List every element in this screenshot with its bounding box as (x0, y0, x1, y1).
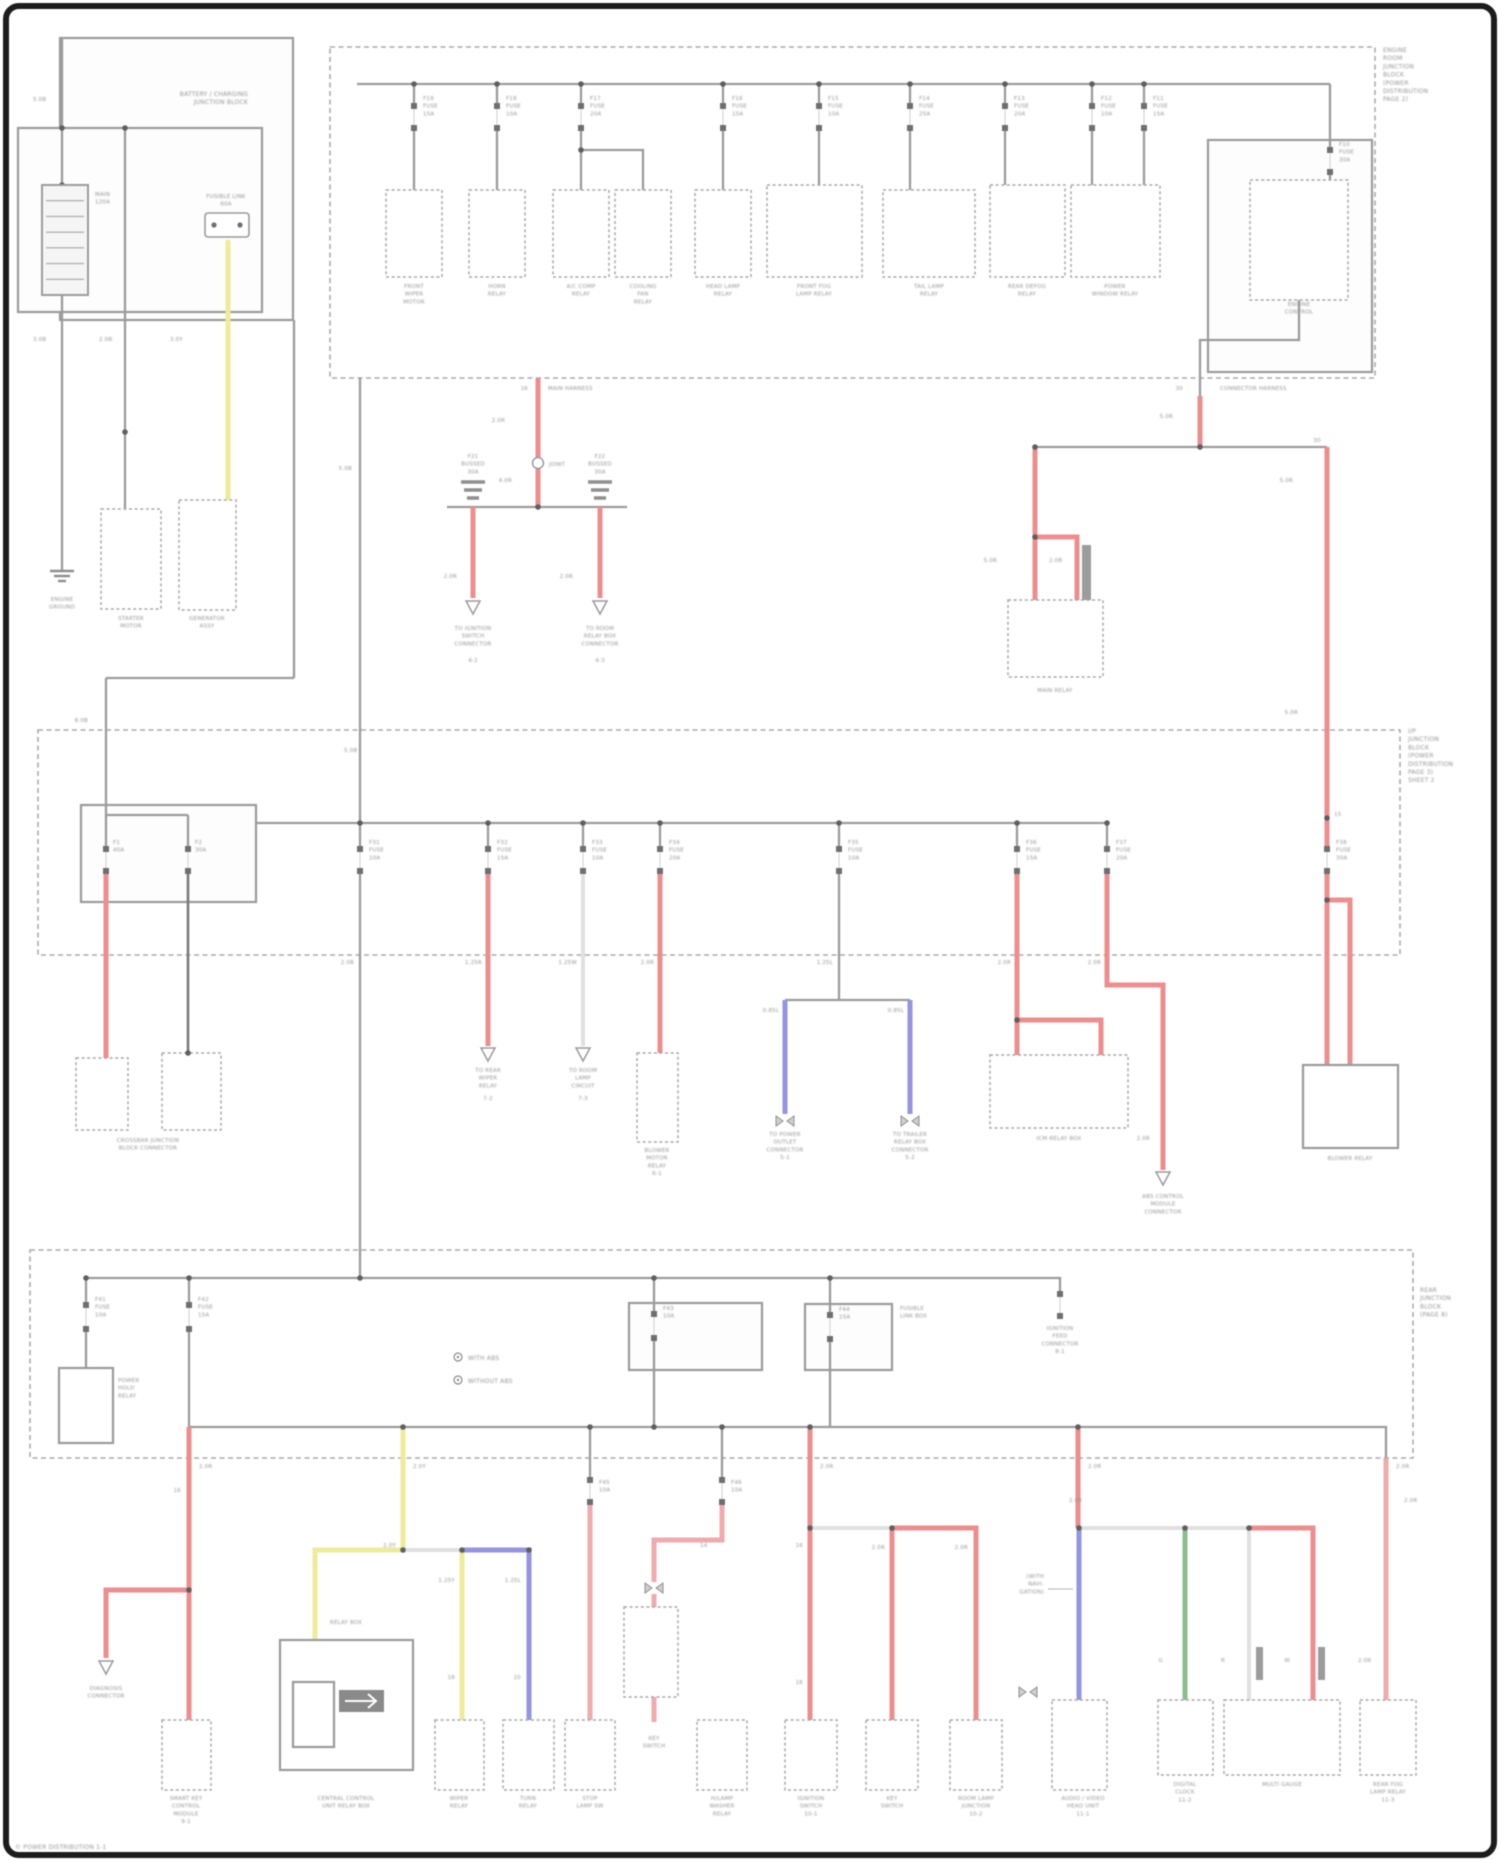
diagram-label: FUSE (497, 848, 512, 854)
diagram-label: 5.0B (344, 748, 357, 754)
fuse-terminal-icon (1104, 846, 1110, 852)
diagram-label: 2.0R (1088, 960, 1101, 966)
wire-y (315, 1427, 403, 1640)
diagram-label: SWITCH (462, 634, 485, 640)
diagram-label: CONNECTOR (454, 641, 491, 647)
diagram-label: FUSE (1339, 150, 1354, 156)
diagram-label: 15A (198, 1312, 209, 1318)
diagram-label: FUSIBLE (900, 1306, 924, 1312)
starter-connector (101, 509, 161, 609)
stop-lamp-connector (565, 1720, 615, 1790)
junction-dot (122, 429, 128, 435)
diagram-label: FUSIBLE LINK (206, 194, 245, 200)
diagram-label: 1.25L (817, 960, 834, 966)
inline-connector-icon (776, 1116, 794, 1126)
diagram-label: 5.0R (1160, 414, 1173, 420)
diagram-label: RELAY (920, 292, 939, 298)
diagram-label: 14 (700, 1543, 708, 1549)
diagram-label: ENGINE (1288, 302, 1311, 308)
diagram-label: MOTOR (403, 299, 425, 305)
fuse-terminal-icon (211, 222, 216, 227)
fuse-terminal-icon (1104, 868, 1110, 874)
diagram-label: WITH ABS (468, 1355, 499, 1362)
diagram-label: F33 (592, 840, 603, 846)
diagram-label: TURN (519, 1796, 536, 1802)
junction-dot (459, 1547, 465, 1553)
diagram-label: 4.0R (499, 478, 512, 484)
junction-dot (494, 81, 500, 87)
diagram-label: FAN (637, 292, 648, 298)
diagram-label: CONNECTOR (1144, 1209, 1181, 1215)
diagram-label: 2.0R (641, 960, 654, 966)
junction-dot (1089, 81, 1095, 87)
diagram-label: BLOWER RELAY (1327, 1156, 1372, 1162)
diagram-label: F44 (839, 1307, 850, 1313)
fuse-terminal-icon (651, 1311, 657, 1317)
diagram-label: F18 (506, 96, 517, 102)
diagram-label: FUSE (1026, 848, 1041, 854)
joint-connector-icon (533, 458, 544, 469)
fuse-terminal-icon (657, 846, 663, 852)
wire-p (654, 1502, 722, 1582)
fuse-terminal-icon (580, 868, 586, 874)
wire-b (462, 1550, 529, 1720)
diagram-label: OUTLET (774, 1140, 797, 1146)
diagram-label: 3.0B (33, 337, 46, 343)
wire-r (1327, 900, 1350, 1065)
fuse-terminal-icon (580, 846, 586, 852)
diagram-label: F43 (663, 1306, 674, 1312)
diagram-label: BLOWER (645, 1148, 670, 1154)
fuse-terminal-icon (587, 1499, 593, 1505)
fuse-terminal-icon (83, 1302, 89, 1308)
diagram-label: F15 (828, 96, 839, 102)
diagram-label: 2.0R (1088, 1464, 1101, 1470)
blower-relay-connector (637, 1053, 678, 1142)
diagram-label: FUSE (506, 104, 521, 110)
components (59, 180, 1416, 1790)
diagram-label: TAIL LAMP (913, 284, 944, 290)
diagram-label: 30A (1336, 855, 1347, 861)
diagram-label: 5.0B (33, 97, 46, 103)
diagram-label: RELAY (634, 299, 653, 305)
diagram-label: UNIT RELAY BOX (322, 1804, 370, 1810)
horn-relay-box (469, 190, 525, 277)
diagram-label: 30A (195, 848, 206, 854)
junction-dot (578, 147, 584, 153)
battery-icon (42, 185, 88, 295)
diagram-label: REAR (1420, 1287, 1437, 1294)
junction-dot (580, 820, 586, 826)
diagram-label: FUSE (1014, 104, 1029, 110)
diagram-label: 15A (497, 855, 508, 861)
diagram-label: CENTRAL CONTROL (318, 1796, 376, 1802)
inline-connector-icon (1019, 1687, 1037, 1697)
wire-g (189, 1427, 1386, 1458)
diagram-label: IGNITION (1047, 1326, 1074, 1332)
diagram-label: BLOCK (1383, 72, 1405, 79)
engine-control-box (1250, 180, 1348, 300)
defog-relay-box (990, 185, 1065, 277)
diagram-label: 2.0R (560, 574, 573, 580)
fuse-terminal-icon (186, 1326, 192, 1332)
diagram-label: F11 (1153, 96, 1164, 102)
diagram-label: R (1221, 1658, 1225, 1664)
junction-dot (1014, 820, 1020, 826)
junction-dot (1324, 897, 1330, 903)
diagram-label: 1.25R (465, 960, 482, 966)
diagram-label: 15A (1153, 111, 1164, 117)
key-switch-connector (866, 1720, 918, 1790)
diagram-label: MOTOR (120, 624, 142, 630)
diagram-label: HORN (488, 284, 505, 290)
diagram-label: FUSE (669, 848, 684, 854)
diagram-label: 11-3 (1381, 1797, 1395, 1803)
diagram-label: HEAD LAMP (706, 284, 741, 290)
diagram-label: 1.25Y (438, 1578, 455, 1584)
diagram-label: SHEET 2 (1408, 777, 1435, 784)
diagram-label: FUSE (1153, 104, 1168, 110)
diagram-label: STOP (582, 1796, 598, 1802)
diagram-label: 2.0B (99, 337, 112, 343)
fuse-terminal-icon (1327, 169, 1333, 175)
junction-dot (400, 1547, 406, 1553)
junction-dot (1324, 815, 1330, 821)
shield-bar (1082, 545, 1091, 600)
diagram-label: LAMP (575, 1076, 591, 1082)
diagram-label: BLOCK CONNECTOR (119, 1146, 177, 1152)
shield-bar (1318, 1647, 1325, 1680)
diagram-label: 16 (796, 1680, 804, 1686)
junction-dot (186, 1587, 192, 1593)
diagram-label: 20 (514, 1675, 522, 1681)
diagram-label: FUSE (828, 104, 843, 110)
diagram-label: F2 (195, 840, 202, 846)
diagram-label: CONNECTOR (1041, 1341, 1078, 1347)
diagram-label: FUSE (592, 848, 607, 854)
fuse-terminal-icon (657, 868, 663, 874)
diagram-label: F37 (1116, 840, 1127, 846)
fuse-terminal-icon (1057, 1291, 1063, 1297)
diagram-label: 15A (732, 111, 743, 117)
diagram-label: SWITCH (643, 1744, 666, 1750)
diagram-label: JUNCTION (961, 1804, 991, 1810)
diagram-label: RELAY (572, 292, 591, 298)
turn-relay-connector (503, 1720, 554, 1790)
diagram-label: POWER (118, 1378, 139, 1384)
diagram-label: 5.0R (1280, 478, 1293, 484)
diagram-label: 5-2 (905, 1155, 915, 1161)
diagram-label: WIPER (479, 1076, 498, 1082)
diagram-label: F42 (198, 1297, 209, 1303)
diagram-label: RELAY (714, 292, 733, 298)
diagram-label: 3.0Y (170, 337, 183, 343)
diagram-label: (POWER (1408, 753, 1434, 760)
diagram-label: POWER (1104, 284, 1125, 290)
diagram-label: CROSSBAR JUNCTION (117, 1138, 180, 1144)
diagram-label: 10A (369, 855, 380, 861)
diagram-label: BUSSED (461, 462, 485, 468)
diagram-label: ASSY (200, 624, 215, 630)
diagram-label: FUSE (1116, 848, 1131, 854)
diagram-label: ROOM (1383, 55, 1403, 62)
diagram-label: LINK BOX (900, 1314, 927, 1320)
diagram-label: SMART KEY (170, 1796, 203, 1802)
diagram-label: 5.0R (1285, 710, 1298, 716)
diagram-label: W (1284, 1658, 1290, 1664)
fuse-terminal-icon (1324, 846, 1330, 852)
washer-relay-connector (697, 1720, 747, 1790)
diagram-label: 2.0R (872, 1545, 885, 1551)
diagram-label: AUDIO / VIDEO (1061, 1796, 1105, 1802)
diagram-label: FUSE (1101, 104, 1116, 110)
fuse-terminal-icon (83, 1326, 89, 1332)
junction-dot (907, 81, 913, 87)
junction-dot (1032, 444, 1038, 450)
junction-dot (719, 1424, 725, 1430)
diagram-label: KEY (648, 1736, 659, 1742)
audio-unit-connector (1052, 1700, 1107, 1790)
fuse-terminal-icon (816, 103, 822, 109)
diagram-label: 10-2 (969, 1811, 982, 1817)
diagram-label: 20A (1014, 111, 1025, 117)
diagram-label: 16 (521, 386, 529, 392)
diagram-label: PAGE 2) (1383, 96, 1408, 103)
diagram-label: BLOCK (1420, 1303, 1442, 1310)
relay-inner-box (293, 1682, 334, 1747)
sub-fuse-box-1 (629, 1303, 762, 1370)
diagram-label: 5-1 (780, 1155, 790, 1161)
fuse-terminal-icon (185, 846, 191, 852)
diagram-label: 10A (599, 1488, 610, 1494)
diagram-label: ICM RELAY BOX (1037, 1136, 1082, 1142)
fuse-terminal-icon (1327, 147, 1333, 153)
fuse-terminal-icon (494, 125, 500, 131)
diagram-label: (WITH (1026, 1574, 1044, 1580)
diagram-label: G (1159, 1658, 1163, 1664)
diagram-label: 2.0R (1396, 1464, 1409, 1470)
diagram-label: 2.0Y (413, 1464, 426, 1470)
diagram-label: 15A (423, 111, 434, 117)
diagram-label: 10A (592, 855, 603, 861)
diagram-label: CONNECTOR (766, 1147, 803, 1153)
junction-dot (185, 1050, 191, 1056)
diagram-label: F21 (468, 454, 479, 460)
diagram-label: 2.0R (199, 1464, 212, 1470)
diagram-label: 7-3 (578, 1096, 588, 1102)
fuse-terminal-icon (103, 846, 109, 852)
diagram-label: F32 (497, 840, 508, 846)
diagram-label: 10A (848, 855, 859, 861)
diagram-label: 2.0R (1137, 1136, 1150, 1142)
diagram-label: COOLING (630, 284, 657, 290)
fuse-terminal-icon (720, 103, 726, 109)
diagram-label: 2.0R (444, 574, 457, 580)
fuse-terminal-icon (587, 1477, 593, 1483)
diagram-label: RELAY (118, 1393, 137, 1399)
junction-dot (186, 1275, 192, 1281)
junction-dot (411, 81, 417, 87)
diagram-label: CONNECTOR (891, 1147, 928, 1153)
diagram-label: FRONT (404, 284, 424, 290)
to-arrow-icon (466, 601, 480, 614)
diagram-label: 0.85L (888, 1008, 905, 1014)
diagram-label: WIPER (405, 292, 424, 298)
fuse-terminal-icon (907, 125, 913, 131)
diagram-label: 2.0R (1069, 1498, 1082, 1504)
diagram-label: JUNCTION BLOCK (193, 99, 249, 106)
diagram-label: 2.0R (998, 960, 1011, 966)
diagram-label: F12 (1101, 96, 1112, 102)
diagram-label: F31 (369, 840, 380, 846)
diagram-label: 60A (220, 202, 231, 208)
fuse-terminal-icon (1089, 125, 1095, 131)
diagram-label: CIRCUIT (571, 1083, 595, 1089)
wire-r (892, 1528, 976, 1720)
fan-relay-box (615, 190, 671, 277)
junction-dot (1197, 444, 1203, 450)
diagram-label: 4-3 (595, 658, 605, 664)
diagram-label: TO ROOM (568, 1068, 597, 1074)
diagram-label: H/LAMP (711, 1796, 734, 1802)
smart-key-connector (162, 1720, 211, 1790)
diagram-label: RELAY (648, 1163, 667, 1169)
inline-connector-icon (901, 1116, 919, 1126)
wire-r (1035, 537, 1077, 600)
rear-fog-connector (1360, 1700, 1416, 1775)
diagram-label: 30 (1313, 438, 1321, 444)
fuse-terminal-icon (411, 103, 417, 109)
diagram-label: CONTROL (1285, 310, 1314, 316)
diagram-label: BUSSED (588, 462, 612, 468)
diagram-label: NAVI- (1028, 1582, 1044, 1588)
junction-dot (651, 1275, 657, 1281)
diagram-label: FEED (1052, 1334, 1067, 1340)
diagram-label: GATION) (1019, 1589, 1044, 1595)
diagram-label: MULTI GAUGE (1262, 1782, 1302, 1788)
junction-dot (400, 1424, 406, 1430)
diagram-label: 30A (594, 469, 605, 475)
diagram-label: DIAGNOSIS (90, 1686, 123, 1692)
diagram-label: GENERATOR (189, 616, 225, 622)
diagram-label: F38 (1336, 840, 1347, 846)
junction-dot (836, 820, 842, 826)
junction-dot (1182, 1525, 1188, 1531)
junction-dot (357, 1275, 363, 1281)
diagram-label: IGNITION (798, 1796, 825, 1802)
to-arrow-icon (576, 1048, 590, 1061)
diagram-label: 1.25L (505, 1578, 522, 1584)
fuse-terminal-icon (494, 103, 500, 109)
to-arrow-icon (593, 601, 607, 614)
diagram-label: ENGINE (1383, 47, 1407, 54)
wire-g (581, 150, 643, 190)
diagram-label: MAIN HARNESS (548, 386, 593, 392)
diagram-label: DISTRIBUTION (1383, 88, 1428, 95)
fuse-terminal-icon (1089, 103, 1095, 109)
junction-dot (587, 1424, 593, 1430)
diagram-label: TO REAR (474, 1068, 501, 1074)
legend-bullet-dot (457, 1356, 459, 1358)
diagram-label: 18 (448, 1675, 456, 1681)
junction-dot (1076, 1525, 1082, 1531)
wire-r (106, 1590, 189, 1658)
ac-relay-box (553, 190, 609, 277)
diagram-label: 20A (669, 855, 680, 861)
diagram-label: 15A (839, 1315, 850, 1321)
diagram-label: STARTER (118, 616, 144, 622)
diagram-label: 15A (1026, 855, 1037, 861)
diagram-label: CONNECTOR HARNESS (1220, 386, 1287, 392)
diagram-label: KEY (886, 1796, 897, 1802)
diagram-label: 30 (1176, 386, 1184, 392)
junction-dot (122, 125, 128, 131)
diagram-label: 11-2 (1178, 1797, 1191, 1803)
junction-dot (1032, 534, 1038, 540)
diagram-label: F41 (95, 1297, 106, 1303)
fuse-terminal-icon (357, 846, 363, 852)
fuse-terminal-icon (651, 1335, 657, 1341)
fuse-terminal-icon (578, 125, 584, 131)
diagram-label: RELAY BOX (894, 1140, 926, 1146)
diagram-label: 30A (467, 469, 478, 475)
diagram-label: BLOCK (1408, 744, 1430, 751)
junction-dot (1014, 1017, 1020, 1023)
diagram-label: LAMP RELAY (1370, 1790, 1406, 1796)
diagram-label: F46 (731, 1480, 742, 1486)
diagram-label: TO ROOM (585, 626, 614, 632)
legend-bullet-dot (457, 1379, 459, 1381)
fuse-terminal-icon (186, 1302, 192, 1308)
fuse-terminal-icon (103, 868, 109, 874)
diagram-label: CONNECTOR (581, 641, 618, 647)
diagram-label: BATTERY / CHARGING (180, 91, 248, 98)
diagram-label: 25A (919, 111, 930, 117)
diagram-label: F45 (599, 1480, 610, 1486)
taillamp-relay-box (883, 190, 975, 277)
diagram-label: 20A (590, 111, 601, 117)
diagram-label: MAIN (95, 192, 110, 198)
main-relay-box (1008, 600, 1103, 677)
diagram-label: MAIN RELAY (1037, 688, 1073, 694)
diagram-label: CONTROL (172, 1804, 201, 1810)
crossbar-connector-1 (76, 1058, 128, 1130)
diagram-label: FUSE (423, 104, 438, 110)
diagram-label: FUSE (1336, 848, 1351, 854)
clock-connector (1158, 1700, 1213, 1775)
junction-dot (807, 1525, 813, 1531)
diagram-label: WITHOUT ABS (468, 1378, 513, 1385)
diagram-label: 20A (1116, 855, 1127, 861)
diagram-label: SWITCH (800, 1804, 823, 1810)
crossbar-connector-2 (162, 1053, 221, 1130)
diagram-label: 6-1 (652, 1171, 662, 1177)
multi-gauge-connector (1224, 1700, 1340, 1775)
diagram-label: 4-2 (468, 658, 478, 664)
diagram-label: 10A (828, 111, 839, 117)
diagram-label: F10 (1339, 142, 1350, 148)
junction-dot (83, 1275, 89, 1281)
diagram-label: 2.0R (955, 1545, 968, 1551)
fuse-terminal-icon (578, 103, 584, 109)
diagram-label: 2.0B (341, 960, 354, 966)
diagram-label: 15 (1334, 812, 1342, 818)
diagram-label: 2.0R (1358, 1658, 1371, 1664)
fuse-terminal-icon (836, 846, 842, 852)
diagram-label: RELAY (1018, 292, 1037, 298)
diagram-label: 10A (1101, 111, 1112, 117)
diagram-label: 8-1 (1055, 1349, 1065, 1355)
